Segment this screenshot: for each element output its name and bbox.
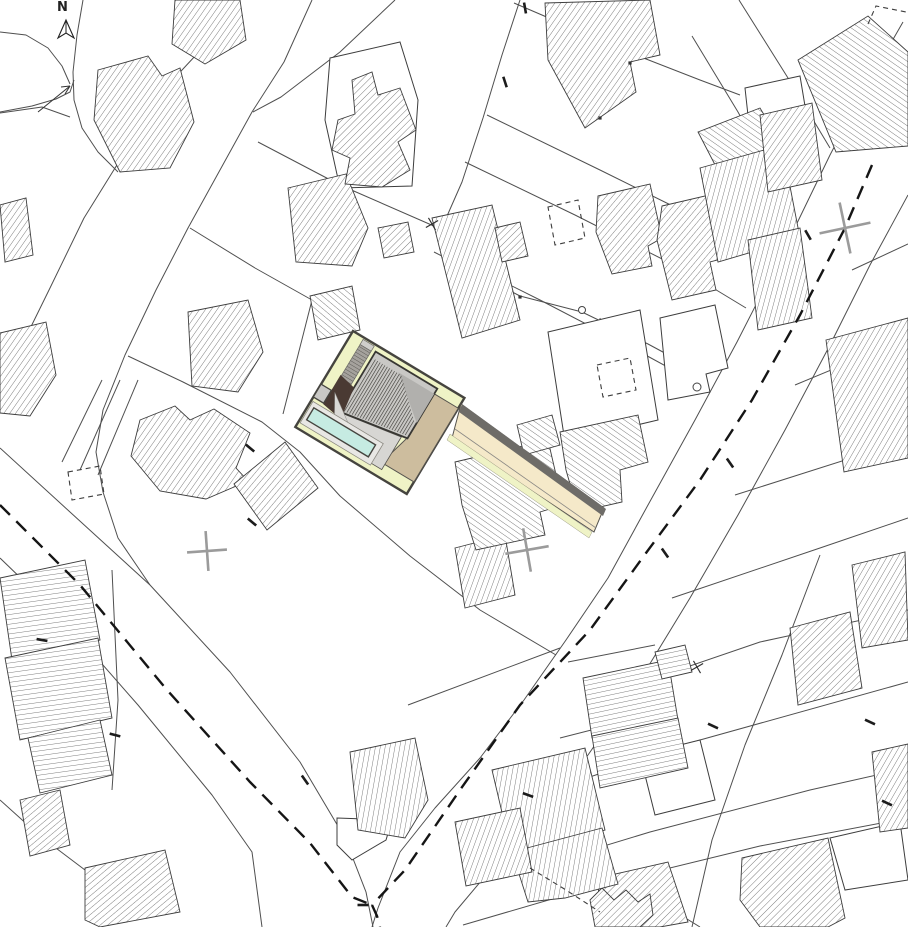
- boundary-tick: [248, 518, 256, 525]
- hatched-buildings-layer: [0, 0, 908, 927]
- proposed-site-group: [295, 331, 464, 494]
- building-hatched: [790, 612, 862, 705]
- building-hatched: [94, 56, 194, 172]
- building-hatched: [350, 738, 428, 838]
- parcel-line: [112, 570, 118, 790]
- parcel-line: [283, 300, 312, 414]
- boundary-tick: [503, 77, 506, 87]
- building-hatched: [826, 318, 908, 472]
- boundary-tick: [524, 3, 526, 14]
- building-hatched: [131, 406, 250, 499]
- building-hatched: [378, 222, 414, 258]
- building-hatched: [852, 552, 908, 648]
- building-hatched: [760, 103, 822, 192]
- building-hatched: [188, 300, 263, 392]
- boundary-tick: [865, 720, 875, 725]
- point-marker: [518, 295, 521, 298]
- parcel-line: [852, 244, 908, 270]
- north-label: N: [57, 0, 68, 15]
- building-hatched: [740, 838, 845, 927]
- annotation-arrow-icon: [38, 86, 70, 112]
- survey-cross: [186, 530, 229, 573]
- building-outline: [830, 822, 908, 890]
- point-marker: [628, 61, 631, 64]
- boundary-tick: [727, 458, 733, 467]
- parcel-line: [80, 380, 120, 470]
- building-hatched: [655, 645, 692, 679]
- building-hatched: [0, 198, 33, 262]
- building-hatched: [0, 322, 56, 416]
- boundary-tick: [302, 775, 308, 784]
- north-arrow-icon: [58, 20, 74, 38]
- boundary-tick: [246, 444, 254, 451]
- site-plan-canvas: [0, 0, 908, 927]
- point-marker: [598, 116, 601, 119]
- parcel-line: [440, 0, 520, 232]
- parcel-line: [0, 107, 70, 117]
- building-hatched: [85, 850, 180, 927]
- boundary-tick: [805, 230, 811, 240]
- building-hatched: [748, 228, 812, 330]
- building-hatched: [20, 790, 70, 856]
- parcel-line: [98, 380, 138, 475]
- parcel-line: [0, 32, 70, 84]
- building-hatched: [872, 744, 908, 832]
- parcel-line: [0, 80, 74, 112]
- utility-circle-marker: [579, 307, 586, 314]
- dashed-outline: [68, 466, 104, 500]
- building-hatched: [455, 808, 532, 886]
- building-hatched: [234, 442, 318, 530]
- survey-cross: [814, 197, 876, 259]
- building-hatched: [545, 0, 660, 128]
- site-plan-stage: N: [0, 0, 908, 927]
- building-hatched: [172, 0, 246, 64]
- boundary-tick: [110, 734, 121, 737]
- parcel-line: [568, 645, 655, 662]
- x-mark: [691, 661, 703, 673]
- parcel-line: [372, 22, 903, 927]
- utility-circle-marker: [693, 383, 701, 391]
- boundary-tick: [708, 724, 718, 729]
- boundary-tick: [662, 548, 668, 557]
- parcel-line: [408, 648, 560, 705]
- building-hatched: [596, 184, 662, 274]
- dashed-outline: [548, 200, 585, 245]
